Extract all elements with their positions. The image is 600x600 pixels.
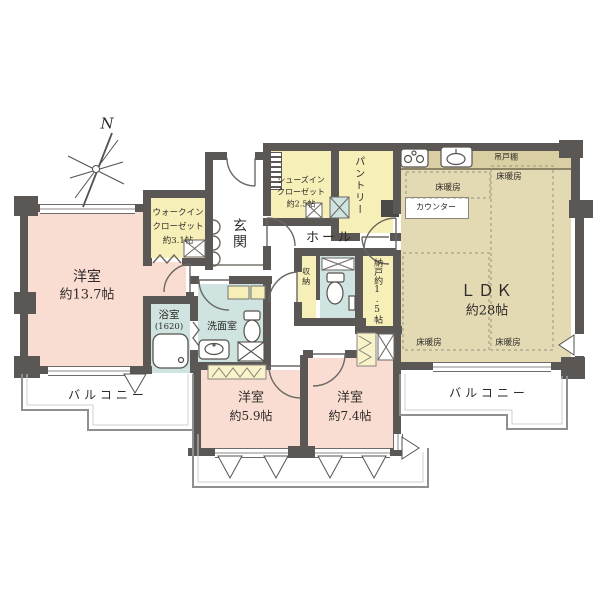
balcony-right-outline bbox=[400, 374, 567, 429]
floor-heating-label-1: 床暖房 bbox=[435, 184, 461, 194]
washroom-cabinets bbox=[228, 286, 265, 299]
counter-label: カウンター bbox=[416, 202, 456, 211]
entrance-door bbox=[227, 158, 255, 186]
bath-name: 浴室 bbox=[159, 309, 180, 321]
toilet-door bbox=[269, 272, 297, 302]
bedroom-59-name: 洋室 bbox=[238, 392, 264, 407]
nando-shaft bbox=[378, 334, 394, 360]
washroom-door bbox=[199, 280, 229, 310]
bedroom-main-name: 洋室 bbox=[73, 269, 101, 285]
wic-label-2: クローゼット bbox=[152, 223, 203, 233]
bedroom-74-size: 約7.4帖 bbox=[328, 410, 371, 424]
bedroom-74-door bbox=[313, 354, 345, 386]
genkan-hall-door bbox=[267, 218, 295, 246]
stove-icon bbox=[401, 149, 428, 167]
bedroom-59-size: 約5.9帖 bbox=[229, 410, 272, 424]
wic-label-3: 約3.1帖 bbox=[163, 237, 194, 247]
wic-label-1: ウォークイン bbox=[152, 209, 203, 219]
bedroom-59-door bbox=[269, 366, 301, 398]
genkan-label: 玄関 bbox=[231, 218, 247, 250]
balcony-left-label: バルコニー bbox=[68, 389, 148, 403]
hall-label: ホール bbox=[306, 232, 354, 247]
sic-label-3: 約2.5帖 bbox=[287, 199, 316, 208]
floor-heating-zones bbox=[403, 166, 553, 350]
bath-size: (1620) bbox=[155, 323, 183, 333]
nando-label: 納戸約1.5帖 bbox=[372, 258, 382, 324]
washer-pan-icon bbox=[238, 342, 264, 361]
floor-heating-label-3: 床暖房 bbox=[416, 339, 442, 349]
ldk-door bbox=[364, 218, 396, 250]
floor-heating-label-4: 床暖房 bbox=[495, 339, 521, 349]
ldk-name: ＬＤＫ bbox=[460, 282, 514, 300]
toilet-icon-wc bbox=[327, 273, 355, 310]
shoe-cabinet-doors bbox=[213, 220, 220, 266]
bedroom-main-size: 約13.7帖 bbox=[60, 289, 115, 304]
floor-plan: N 洋室 約13.7帖 ウォークイン クローゼット 約3.1帖 玄関 シューズイ… bbox=[0, 0, 600, 600]
washroom-label: 洗面室 bbox=[207, 321, 237, 333]
toilet-cabinet bbox=[322, 258, 354, 270]
ps-shaft bbox=[330, 197, 349, 218]
toilet-icon-washroom bbox=[244, 311, 260, 342]
compass-north-label: N bbox=[100, 115, 113, 132]
pantry-label: パントリー bbox=[352, 156, 364, 216]
hanging-cupboard-label: 吊戸棚 bbox=[494, 152, 518, 161]
ldk-size: 約28帖 bbox=[466, 305, 509, 320]
bedroom-main-door bbox=[164, 264, 190, 292]
bath-folding-door bbox=[193, 322, 199, 346]
compass-icon bbox=[68, 133, 124, 207]
kitchen-sink-icon bbox=[441, 147, 472, 167]
wic-folding-door bbox=[153, 255, 181, 263]
closet-hatch-59 bbox=[208, 365, 266, 379]
closet-hatch-74 bbox=[357, 333, 376, 366]
floor-heating-label-2: 床暖房 bbox=[496, 173, 522, 183]
storage-label: 収納 bbox=[301, 267, 310, 287]
vanity-sink-icon bbox=[199, 340, 229, 359]
sic-label-1: シューズイン bbox=[277, 175, 325, 184]
bathtub-icon bbox=[153, 334, 188, 368]
balcony-right-label: バルコニー bbox=[449, 387, 529, 401]
bedroom-74-name: 洋室 bbox=[337, 392, 363, 407]
sic-label-2: クローゼット bbox=[277, 187, 325, 196]
